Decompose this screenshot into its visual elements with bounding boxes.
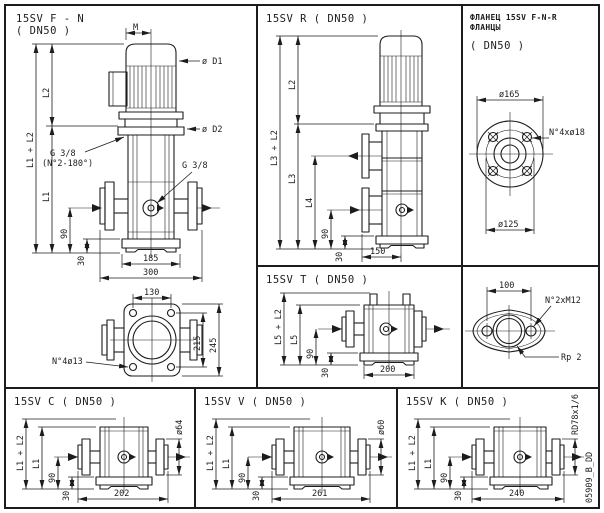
dim-label-width: 202 [114, 489, 129, 499]
dim-label-185: 185 [143, 254, 158, 264]
dim-label-200: 200 [380, 365, 395, 375]
holes-label: N°2xM12 [545, 296, 581, 306]
dim-label-port: ø60 [377, 420, 387, 435]
dim-label-300: 300 [143, 268, 158, 278]
dim-label-l5: L5 [290, 335, 300, 345]
dim-label-l1l2: L1 + L2 [408, 435, 418, 471]
pump-section-view [272, 417, 370, 493]
plug-label-g38: G 3/8 [50, 149, 76, 159]
flow-arrows [311, 152, 382, 214]
panel-subtitle: ( DN50 ) [16, 25, 71, 37]
plug-note: (N°2-180°) [42, 159, 93, 169]
panel-title: 15SV T ( DN50 ) [266, 274, 368, 286]
dim-label-d2: ø D2 [202, 125, 222, 135]
dim-label-245: 245 [209, 338, 219, 353]
dim-label-l5l2: L5 + L2 [274, 309, 284, 345]
doc-code: 05909_B_DD [585, 452, 595, 503]
dim-label-l2: L2 [288, 80, 298, 90]
dimensions: L5 + L2 L5 90 30 200 [274, 293, 414, 379]
dim-label-m: M [133, 23, 138, 33]
flange-title-ru-2: ФЛАНЦЫ [470, 23, 501, 32]
plug-label-g38-2: G 3/8 [182, 161, 208, 171]
dim-label-l1: L1 [424, 459, 434, 469]
panel-15sv-t: 15SV T ( DN50 ) [258, 267, 461, 387]
thread-label: Rp 2 [561, 353, 581, 363]
pump-plan-view [102, 298, 202, 382]
dim-label-l1l2: L1 + L2 [26, 132, 36, 168]
pump-side-view [362, 30, 430, 254]
dim-label-90: 90 [306, 349, 316, 359]
holes-label: N°4ø13 [52, 357, 83, 367]
dim-label-l1: L1 [32, 459, 42, 469]
dim-label-100: 100 [499, 281, 514, 291]
pump-section-view [472, 417, 564, 493]
dim-label-l3l2: L3 + L2 [270, 130, 280, 166]
panel-title: 15SV F - N [16, 13, 84, 25]
dim-label-30: 30 [321, 368, 331, 378]
dim-label-90: 90 [440, 473, 450, 483]
dim-label-30: 30 [62, 491, 72, 501]
dim-label-port: RD78x1/6 [571, 394, 581, 435]
dim-label-165: ø165 [499, 90, 519, 100]
holes-label: N°4xø18 [549, 128, 585, 138]
pump-front-view [100, 29, 202, 258]
oval-flange-view [465, 305, 555, 359]
pump-section-view [78, 417, 168, 493]
panel-15sv-fn: 15SV F - N ( DN50 ) [6, 6, 256, 387]
dim-label-port: ø64 [175, 420, 185, 435]
dim-label-90: 90 [48, 473, 58, 483]
dim-label-215: 215 [193, 336, 203, 351]
dim-label-150: 150 [370, 247, 385, 257]
dim-label-l2: L2 [42, 88, 52, 98]
panel-title: 15SV K ( DN50 ) [406, 396, 508, 408]
dim-label-l1l2: L1 + L2 [206, 435, 216, 471]
dim-label-30: 30 [77, 256, 87, 266]
panel-15sv-r: 15SV R ( DN50 ) [258, 6, 461, 265]
dim-label-d1: ø D1 [202, 57, 222, 67]
drawing-sheet: 15SV F - N ( DN50 ) [0, 0, 604, 513]
panel-15sv-k: 15SV K ( DN50 ) [398, 389, 598, 507]
round-flange-view [469, 112, 553, 196]
panel-15sv-c: 15SV C ( DN50 ) [6, 389, 194, 507]
dim-label-125: ø125 [498, 220, 518, 230]
dim-label-l1l2: L1 + L2 [16, 435, 26, 471]
dimensions: L3 + L2 L2 L3 L4 90 30 150 [270, 36, 401, 262]
dim-label-l3: L3 [288, 174, 298, 184]
sheet-border: 15SV F - N ( DN50 ) [4, 4, 600, 509]
panel-15sv-v: 15SV V ( DN50 ) [196, 389, 396, 507]
dimensions: M ø D1 ø D2 L1 + L2 L2 L1 90 30 G [26, 23, 222, 282]
dim-label-width: 261 [312, 489, 327, 499]
dim-label-90: 90 [238, 473, 248, 483]
panel-flange-round: ФЛАНЕЦ 15SV F-N-R ФЛАНЦЫ ( DN50 ) [463, 6, 598, 265]
dimensions: ø165 ø125 N°4xø18 [477, 90, 585, 234]
panel-flange-oval: 100 N°2xM12 Rp 2 [463, 267, 598, 387]
flange-subtitle: ( DN50 ) [470, 40, 525, 52]
panel-title: 15SV V ( DN50 ) [204, 396, 306, 408]
dim-label-90: 90 [60, 229, 70, 239]
dim-label-l1: L1 [222, 459, 232, 469]
dim-label-l4: L4 [305, 198, 315, 208]
dim-label-130: 130 [144, 288, 159, 298]
dim-label-30: 30 [454, 491, 464, 501]
dimensions: L1 + L2 L1 90 30 261 ø60 [206, 419, 387, 503]
panel-title: 15SV R ( DN50 ) [266, 13, 368, 25]
pump-section-view [342, 291, 426, 369]
panel-title: 15SV C ( DN50 ) [14, 396, 116, 408]
dim-label-30: 30 [335, 252, 345, 262]
dim-label-90: 90 [321, 229, 331, 239]
dim-label-l1: L1 [42, 192, 52, 202]
flange-title-ru-1: ФЛАНЕЦ 15SV F-N-R [470, 13, 557, 22]
dim-label-30: 30 [252, 491, 262, 501]
dim-label-width: 240 [509, 489, 524, 499]
